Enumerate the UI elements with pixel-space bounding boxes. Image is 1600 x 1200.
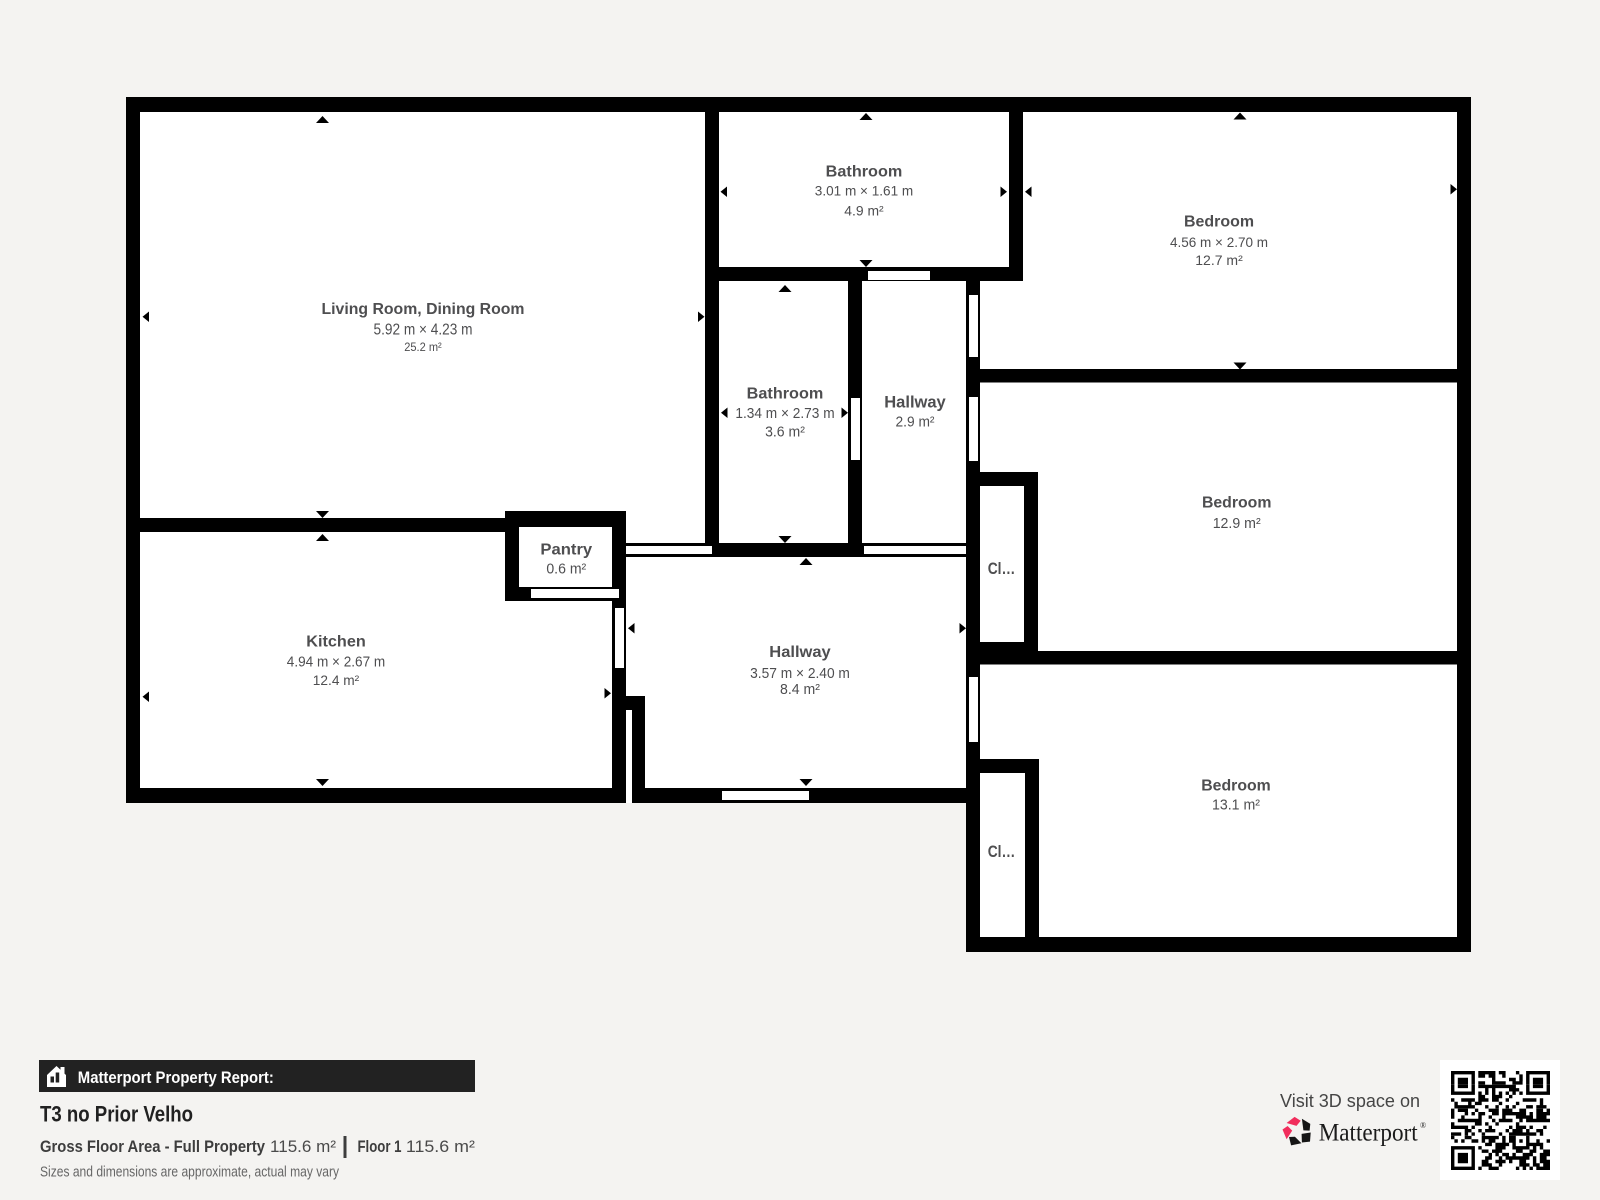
svg-text:Hallway: Hallway	[769, 644, 830, 661]
svg-text:Bathroom: Bathroom	[826, 164, 903, 181]
svg-text:25.2 m²: 25.2 m²	[404, 340, 442, 354]
svg-text:12.7 m²: 12.7 m²	[1195, 252, 1243, 268]
svg-text:3.6 m²: 3.6 m²	[765, 425, 805, 441]
svg-text:2.9 m²: 2.9 m²	[896, 415, 935, 431]
svg-text:4.56 m × 2.70 m: 4.56 m × 2.70 m	[1170, 234, 1268, 250]
svg-text:Cl…: Cl…	[988, 560, 1016, 578]
svg-text:5.92 m × 4.23 m: 5.92 m × 4.23 m	[374, 322, 473, 339]
svg-text:3.57 m × 2.40 m: 3.57 m × 2.40 m	[750, 666, 850, 682]
svg-text:®: ®	[1420, 1121, 1426, 1130]
svg-text:Hallway: Hallway	[884, 394, 946, 412]
svg-text:Cl…: Cl…	[988, 843, 1016, 861]
svg-text:1.34 m × 2.73 m: 1.34 m × 2.73 m	[735, 406, 834, 422]
svg-text:4.9 m²: 4.9 m²	[844, 203, 884, 219]
svg-text:8.4 m²: 8.4 m²	[780, 682, 820, 698]
svg-text:Living Room, Dining Room: Living Room, Dining Room	[322, 301, 525, 318]
svg-text:115.6 m²: 115.6 m²	[270, 1137, 336, 1156]
svg-text:12.9 m²: 12.9 m²	[1213, 516, 1261, 532]
svg-text:Bedroom: Bedroom	[1202, 495, 1272, 512]
svg-text:T3 no Prior Velho: T3 no Prior Velho	[40, 1102, 193, 1127]
svg-text:Bedroom: Bedroom	[1184, 214, 1254, 231]
svg-text:115.6 m²: 115.6 m²	[406, 1137, 475, 1156]
svg-text:Visit 3D space on: Visit 3D space on	[1280, 1091, 1420, 1111]
svg-text:12.4 m²: 12.4 m²	[313, 672, 360, 688]
svg-text:13.1 m²: 13.1 m²	[1212, 798, 1260, 814]
svg-text:Pantry: Pantry	[540, 542, 592, 559]
svg-text:Gross Floor Area - Full Proper: Gross Floor Area - Full Property	[40, 1137, 265, 1156]
svg-text:Bedroom: Bedroom	[1201, 778, 1271, 795]
svg-text:Matterport Property Report:: Matterport Property Report:	[78, 1069, 274, 1087]
svg-text:Floor 1: Floor 1	[358, 1137, 402, 1156]
svg-text:Bathroom: Bathroom	[747, 385, 824, 402]
svg-text:Sizes and dimensions are appro: Sizes and dimensions are approximate, ac…	[40, 1164, 339, 1181]
svg-text:4.94 m × 2.67 m: 4.94 m × 2.67 m	[287, 655, 385, 671]
svg-text:Matterport: Matterport	[1319, 1120, 1418, 1147]
svg-text:Kitchen: Kitchen	[306, 633, 366, 650]
svg-text:0.6 m²: 0.6 m²	[546, 562, 586, 578]
svg-text:3.01 m × 1.61 m: 3.01 m × 1.61 m	[815, 182, 913, 198]
